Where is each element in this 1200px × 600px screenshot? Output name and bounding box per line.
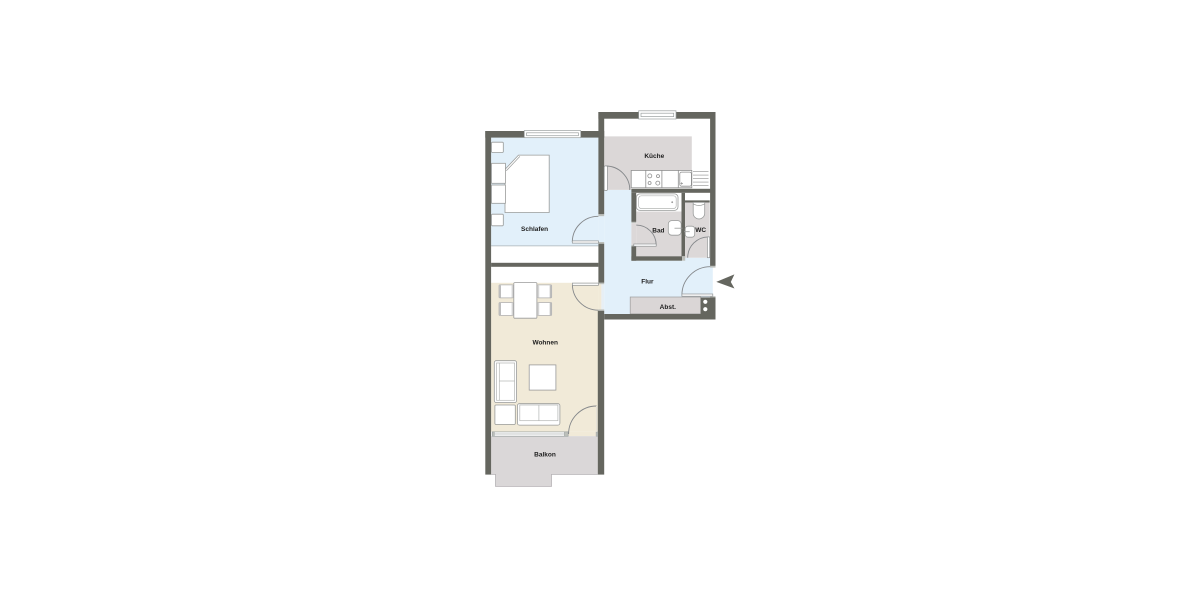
svg-text:Flur: Flur bbox=[641, 279, 654, 286]
svg-text:Abst.: Abst. bbox=[660, 304, 676, 311]
svg-text:Schlafen: Schlafen bbox=[521, 226, 548, 233]
svg-text:WC: WC bbox=[695, 227, 706, 234]
svg-text:Küche: Küche bbox=[644, 153, 664, 160]
svg-text:Wohnen: Wohnen bbox=[532, 339, 558, 346]
svg-text:Bad: Bad bbox=[652, 228, 664, 235]
svg-text:Balkon: Balkon bbox=[534, 451, 556, 458]
